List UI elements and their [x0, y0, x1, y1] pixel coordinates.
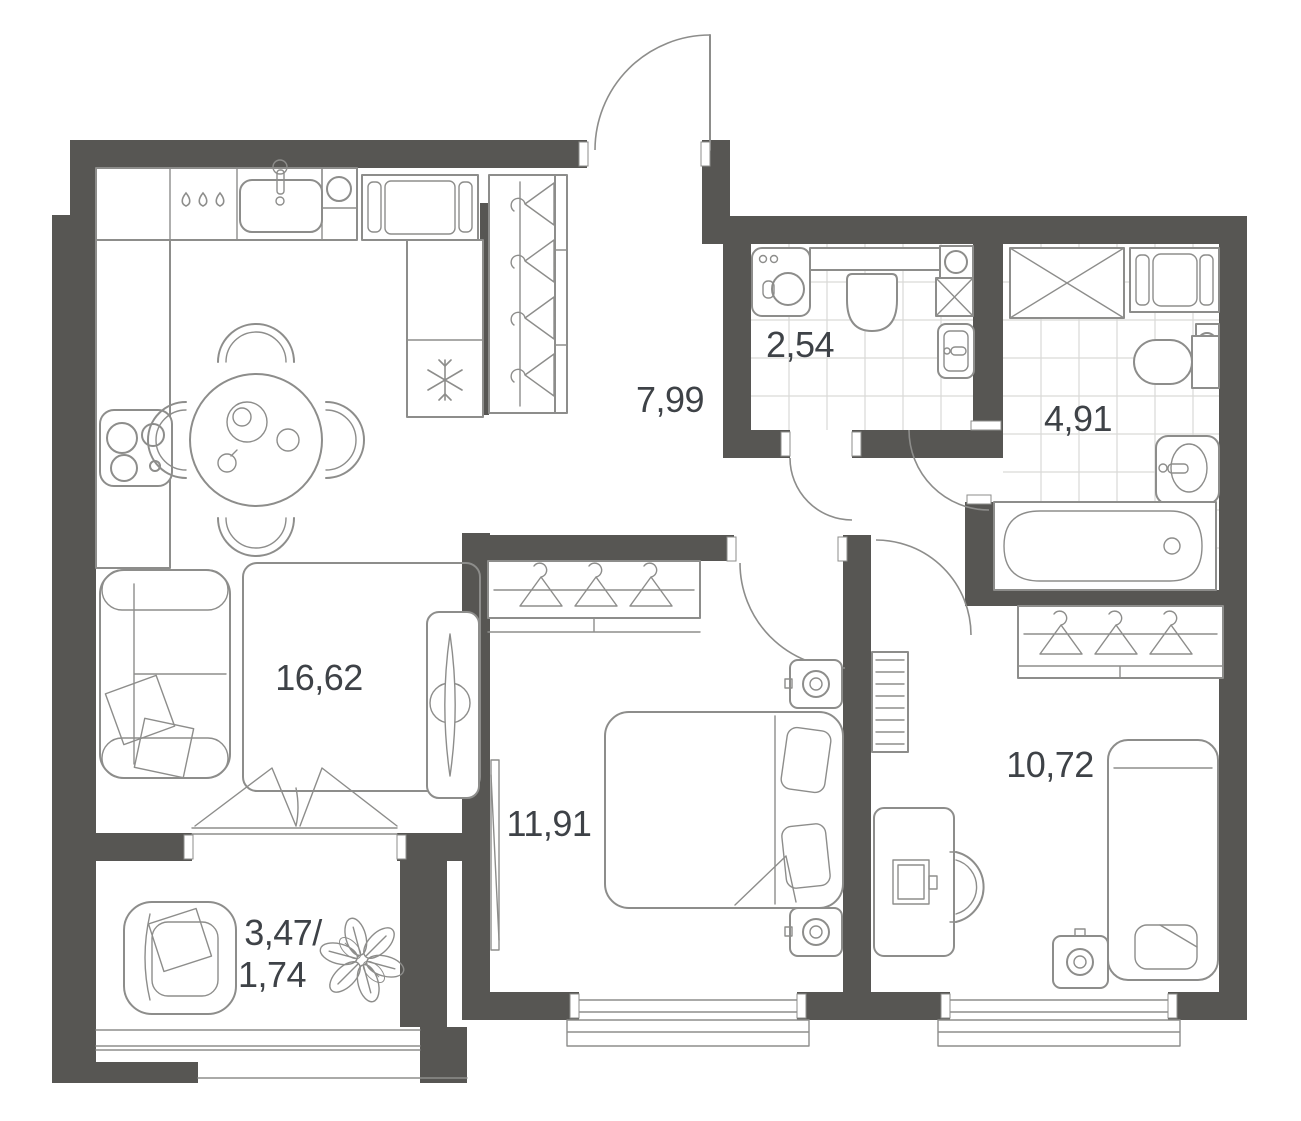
mirror — [491, 760, 499, 950]
floor-plan-svg: 16,62 7,99 2,54 4,91 11,91 10,72 3,47/ 1… — [0, 0, 1301, 1121]
kitchen — [96, 160, 483, 568]
washing-machine — [752, 248, 810, 316]
washer-dryer — [1130, 248, 1219, 312]
bathroom-sink — [1156, 436, 1219, 504]
radiator — [872, 652, 908, 752]
door-jamb — [701, 142, 710, 166]
nightstand — [785, 660, 842, 708]
plant-monstera — [318, 916, 406, 1004]
label-bathroom-area: 4,91 — [1044, 398, 1112, 439]
wc-sink — [938, 324, 974, 378]
label-kitchen-living-area: 16,62 — [275, 657, 363, 698]
wc-door — [781, 432, 861, 520]
kitchen-counter-left — [96, 240, 170, 568]
bedroom-1 — [488, 561, 843, 956]
desk-chair — [950, 852, 984, 922]
bedroom-2-wardrobe — [1018, 606, 1223, 678]
label-hallway-area: 7,99 — [636, 379, 704, 420]
dining-chair — [218, 518, 294, 556]
bedroom-2-door — [876, 540, 971, 635]
stove — [100, 410, 172, 486]
label-balcony-area-full: 3,47/ — [244, 912, 322, 953]
hallway-closet — [489, 175, 567, 413]
double-bed — [605, 712, 843, 908]
label-bedroom-2-area: 10,72 — [1006, 744, 1094, 785]
wc-counter — [810, 248, 940, 270]
single-bed — [1108, 740, 1218, 980]
oven-appliance — [362, 175, 478, 240]
tv-stand — [427, 612, 479, 798]
label-bedroom-1-area: 11,91 — [507, 803, 592, 844]
dining-chair — [326, 402, 364, 478]
sofa — [100, 570, 230, 778]
dining-table — [148, 324, 364, 556]
bedroom-2-window — [938, 994, 1180, 1046]
dining-chair — [218, 324, 294, 362]
bedroom-1-wardrobe — [488, 561, 700, 632]
balcony-door-window — [184, 768, 406, 859]
folded-blanket — [1135, 925, 1197, 969]
fridge — [407, 240, 483, 417]
nightstand — [1053, 929, 1108, 988]
label-balcony-area-coefficient: 1,74 — [238, 954, 306, 995]
toilet — [847, 274, 897, 331]
entry-door — [579, 35, 710, 166]
toilet — [1134, 336, 1219, 388]
shower — [1010, 248, 1124, 318]
bedroom-2 — [872, 606, 1223, 988]
bedroom-1-door — [727, 537, 847, 668]
bedroom-1-window — [567, 994, 809, 1046]
door-jamb — [579, 142, 588, 166]
nightstand — [785, 908, 842, 956]
vent-shaft — [936, 278, 973, 316]
wc-corner-sink — [940, 246, 973, 278]
label-wc-area: 2,54 — [766, 324, 834, 365]
floor-plan-page: 16,62 7,99 2,54 4,91 11,91 10,72 3,47/ 1… — [0, 0, 1301, 1121]
bathtub — [994, 502, 1216, 590]
armchair — [124, 902, 236, 1014]
desk — [874, 808, 954, 956]
